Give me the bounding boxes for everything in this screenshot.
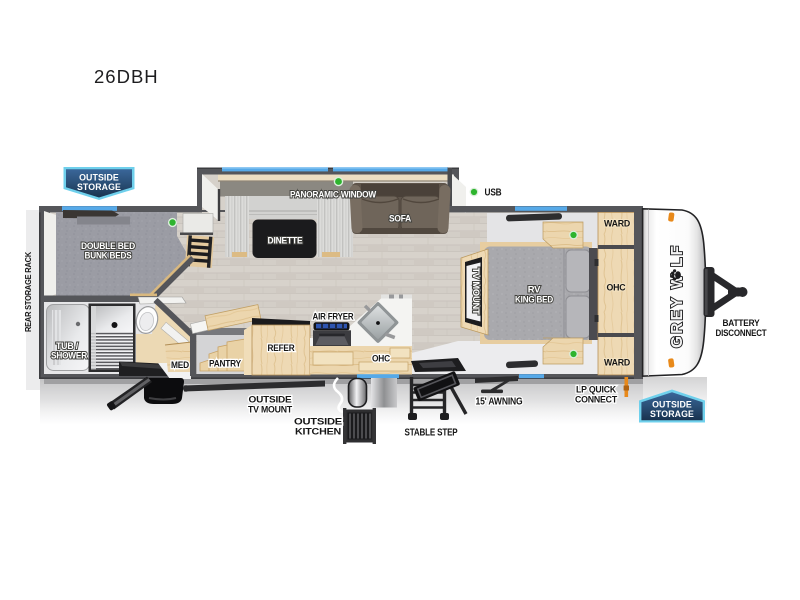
- svg-text:15' AWNING: 15' AWNING: [476, 397, 524, 408]
- svg-text:BUNK BEDS: BUNK BEDS: [85, 250, 132, 261]
- svg-text:GREY W: GREY W: [669, 272, 686, 348]
- svg-text:STORAGE: STORAGE: [77, 182, 121, 192]
- svg-text:LF: LF: [669, 244, 686, 267]
- svg-text:REFER: REFER: [268, 342, 295, 353]
- svg-text:USB: USB: [485, 188, 502, 199]
- svg-text:REAR STORAGE RACK: REAR STORAGE RACK: [23, 251, 33, 332]
- svg-text:TV MOUNT: TV MOUNT: [248, 403, 292, 414]
- svg-text:DINETTE: DINETTE: [268, 235, 303, 246]
- svg-text:OHC: OHC: [372, 353, 390, 364]
- svg-text:PANORAMIC WINDOW: PANORAMIC WINDOW: [290, 189, 376, 200]
- svg-text:SOFA: SOFA: [389, 213, 411, 224]
- svg-text:STORAGE: STORAGE: [650, 409, 694, 419]
- svg-text:OHC: OHC: [607, 283, 627, 293]
- svg-text:PANTRY: PANTRY: [209, 358, 242, 369]
- svg-text:OUTSIDE: OUTSIDE: [652, 400, 692, 410]
- svg-text:AIR FRYER: AIR FRYER: [313, 311, 354, 322]
- svg-text:TV MOUNT: TV MOUNT: [471, 268, 482, 315]
- svg-text:MED: MED: [171, 359, 189, 370]
- svg-text:STABLE STEP: STABLE STEP: [405, 428, 459, 439]
- svg-text:KING BED: KING BED: [515, 293, 553, 304]
- svg-text:SHOWER: SHOWER: [51, 350, 87, 361]
- svg-text:26DBH: 26DBH: [94, 66, 159, 87]
- svg-text:CONNECT: CONNECT: [575, 393, 617, 404]
- svg-text:WARD: WARD: [604, 358, 630, 368]
- svg-text:OUTSIDE: OUTSIDE: [79, 173, 119, 183]
- svg-text:DISCONNECT: DISCONNECT: [716, 327, 767, 338]
- svg-text:KITCHEN: KITCHEN: [295, 425, 341, 436]
- svg-text:WARD: WARD: [604, 219, 630, 229]
